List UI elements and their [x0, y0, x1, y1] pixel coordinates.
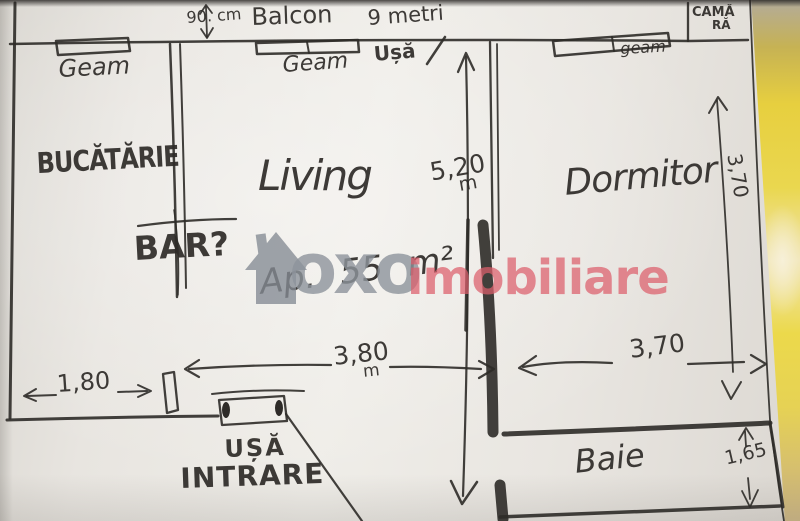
pantry-label-line2: RĂ — [712, 19, 735, 31]
entrance-door-label-line2: INTRARE — [180, 460, 325, 493]
dim-living-width-value: 3,80 — [332, 336, 390, 371]
kitchen-window-label: Geam — [58, 53, 131, 81]
entrance-door-label-line1: UȘĂ — [224, 435, 286, 461]
balcony-depth-label: 90. cm — [186, 6, 242, 26]
bedroom-window-label: geam — [620, 39, 666, 57]
bar-note-label: BAR? — [133, 227, 230, 265]
balcony-door-label: Ușă — [373, 40, 416, 64]
room-bathroom-label: Baie — [573, 439, 646, 478]
room-living-label: Living — [258, 155, 371, 197]
door-hinge-dot — [275, 400, 283, 416]
windows — [56, 33, 670, 56]
dim-living-width: 3,80 m — [332, 338, 392, 384]
living-window-label: Geam — [282, 50, 349, 77]
room-kitchen-label: BUCĂTĂRIE — [36, 143, 179, 179]
photo-top-edge — [0, 0, 800, 7]
floorplan-photo: 90. cm Balcon 9 metri CAMĂ RĂ Geam Geam … — [0, 0, 800, 521]
dim-hall-width: 1,80 — [56, 368, 111, 396]
dim-bedroom-width: 3,70 — [628, 330, 686, 362]
pantry-label: CAMĂ RĂ — [692, 6, 735, 31]
door-hinge-dot — [222, 402, 230, 418]
